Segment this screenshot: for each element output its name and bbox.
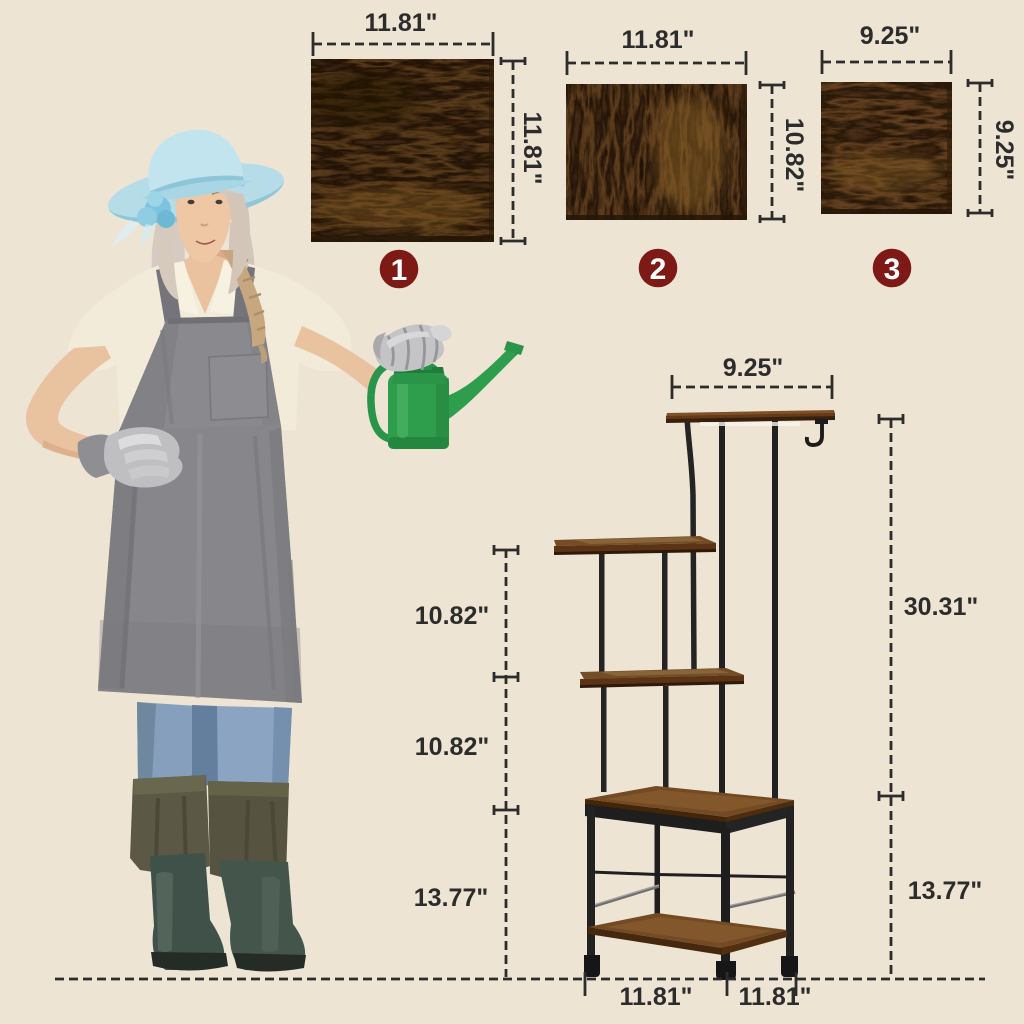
- svg-text:11.81": 11.81": [364, 9, 437, 37]
- svg-text:3: 3: [884, 253, 901, 286]
- svg-text:11.81": 11.81": [621, 26, 694, 54]
- svg-text:10.82": 10.82": [415, 602, 489, 630]
- svg-text:11.81": 11.81": [738, 983, 811, 1011]
- svg-text:2: 2: [650, 253, 667, 286]
- svg-text:9.25": 9.25": [860, 22, 921, 50]
- svg-text:9.25": 9.25": [990, 120, 1018, 181]
- svg-text:11.81": 11.81": [518, 111, 546, 184]
- svg-text:1: 1: [391, 254, 408, 287]
- svg-text:10.82": 10.82": [415, 733, 489, 761]
- svg-text:13.77": 13.77": [414, 884, 488, 912]
- svg-text:13.77": 13.77": [908, 877, 982, 905]
- svg-text:10.82": 10.82": [780, 118, 808, 192]
- svg-text:30.31": 30.31": [904, 593, 978, 621]
- svg-text:9.25": 9.25": [723, 354, 784, 382]
- svg-text:11.81": 11.81": [619, 983, 692, 1011]
